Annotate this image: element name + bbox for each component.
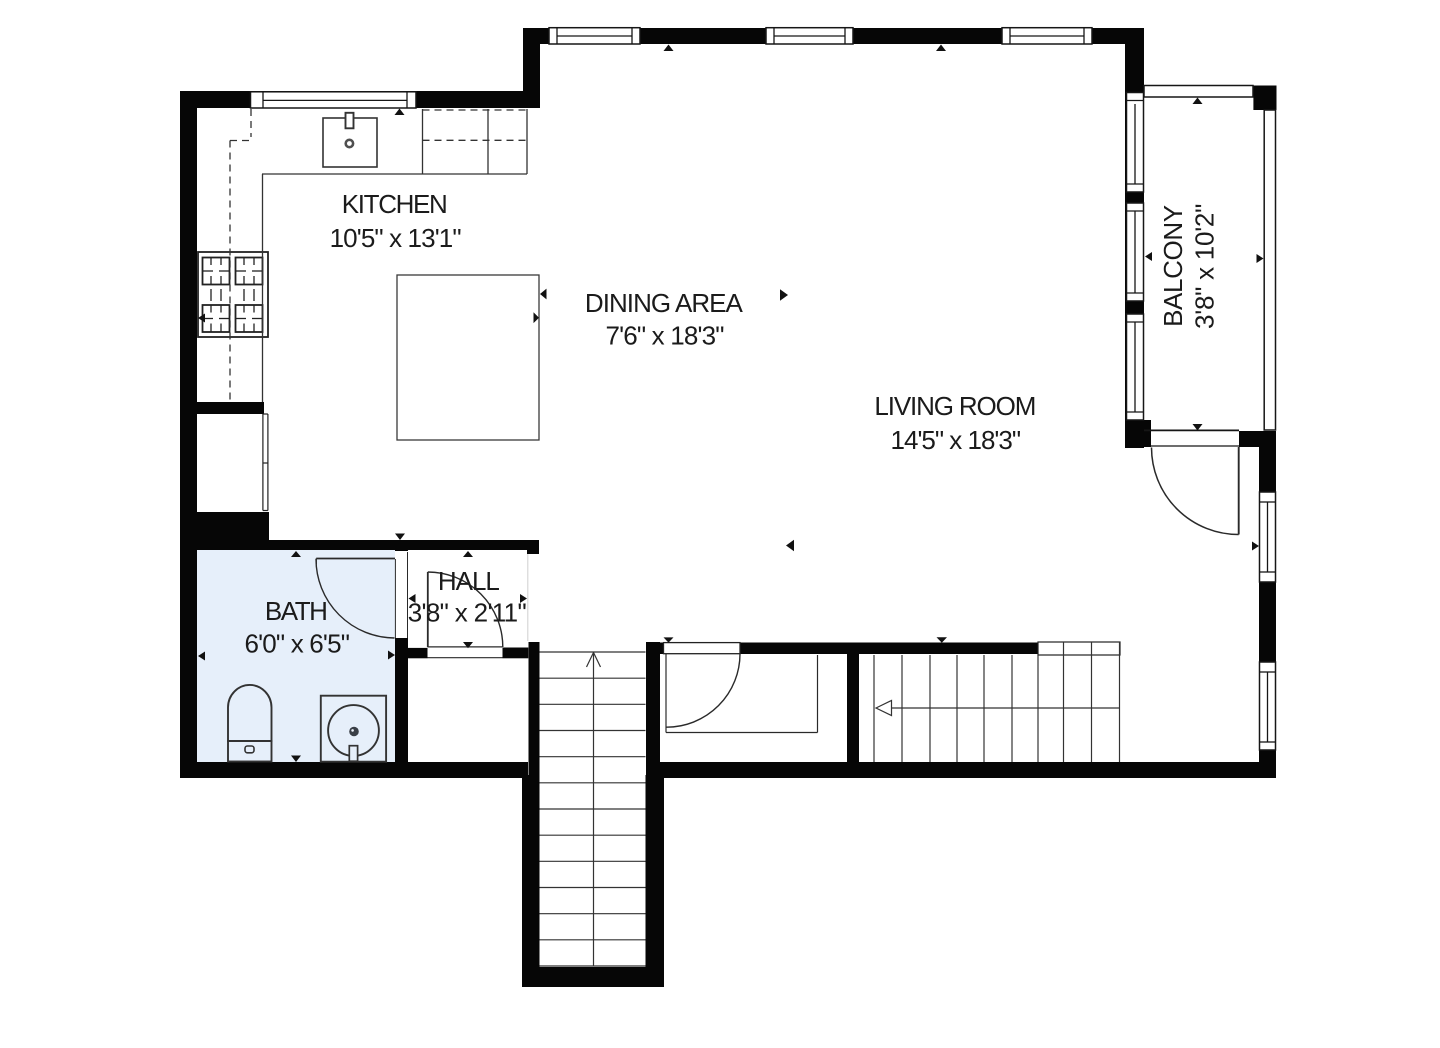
svg-text:6'0" x 6'5": 6'0" x 6'5" [244,628,350,658]
svg-text:10'5" x 13'1": 10'5" x 13'1" [330,223,462,253]
svg-text:BALCONY: BALCONY [1158,205,1188,327]
svg-text:7'6" x 18'3": 7'6" x 18'3" [606,321,725,351]
svg-text:KITCHEN: KITCHEN [342,189,448,219]
svg-text:HALL: HALL [438,566,500,596]
svg-text:3'8" x 10'2": 3'8" x 10'2" [1190,204,1220,329]
svg-text:14'5" x 18'3": 14'5" x 18'3" [891,425,1022,455]
svg-text:LIVING ROOM: LIVING ROOM [874,391,1036,421]
svg-text:3'8" x 2'11": 3'8" x 2'11" [408,598,527,628]
svg-text:DINING AREA: DINING AREA [585,288,744,318]
svg-text:BATH: BATH [265,596,328,626]
